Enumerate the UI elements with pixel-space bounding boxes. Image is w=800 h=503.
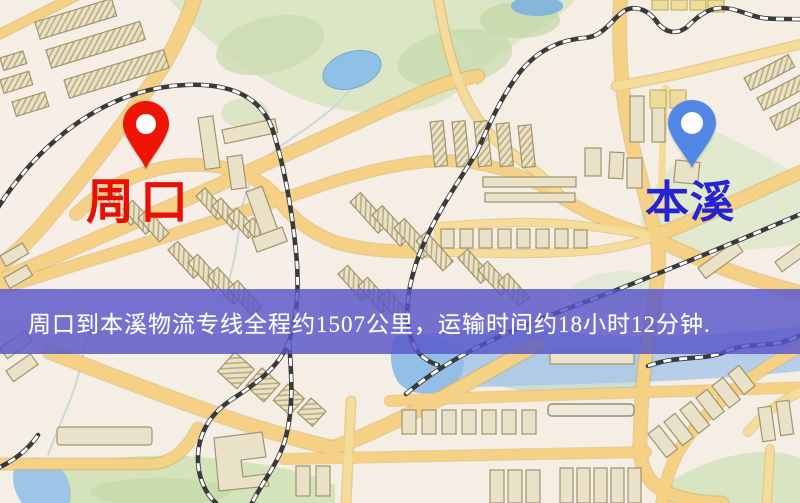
- origin-city-label: 周口: [86, 179, 194, 227]
- destination-pin-icon[interactable]: [666, 98, 718, 170]
- origin-pin-icon[interactable]: [121, 99, 171, 171]
- destination-city-label: 本溪: [645, 181, 735, 225]
- route-info-banner: 周口到本溪物流专线全程约1507公里，运输时间约18小时12分钟.: [0, 289, 800, 354]
- route-info-text: 周口到本溪物流专线全程约1507公里，运输时间约18小时12分钟.: [0, 305, 711, 339]
- route-map-screenshot: 周口到本溪物流专线全程约1507公里，运输时间约18小时12分钟. 周口 本溪: [0, 0, 800, 503]
- map-canvas[interactable]: [0, 0, 800, 503]
